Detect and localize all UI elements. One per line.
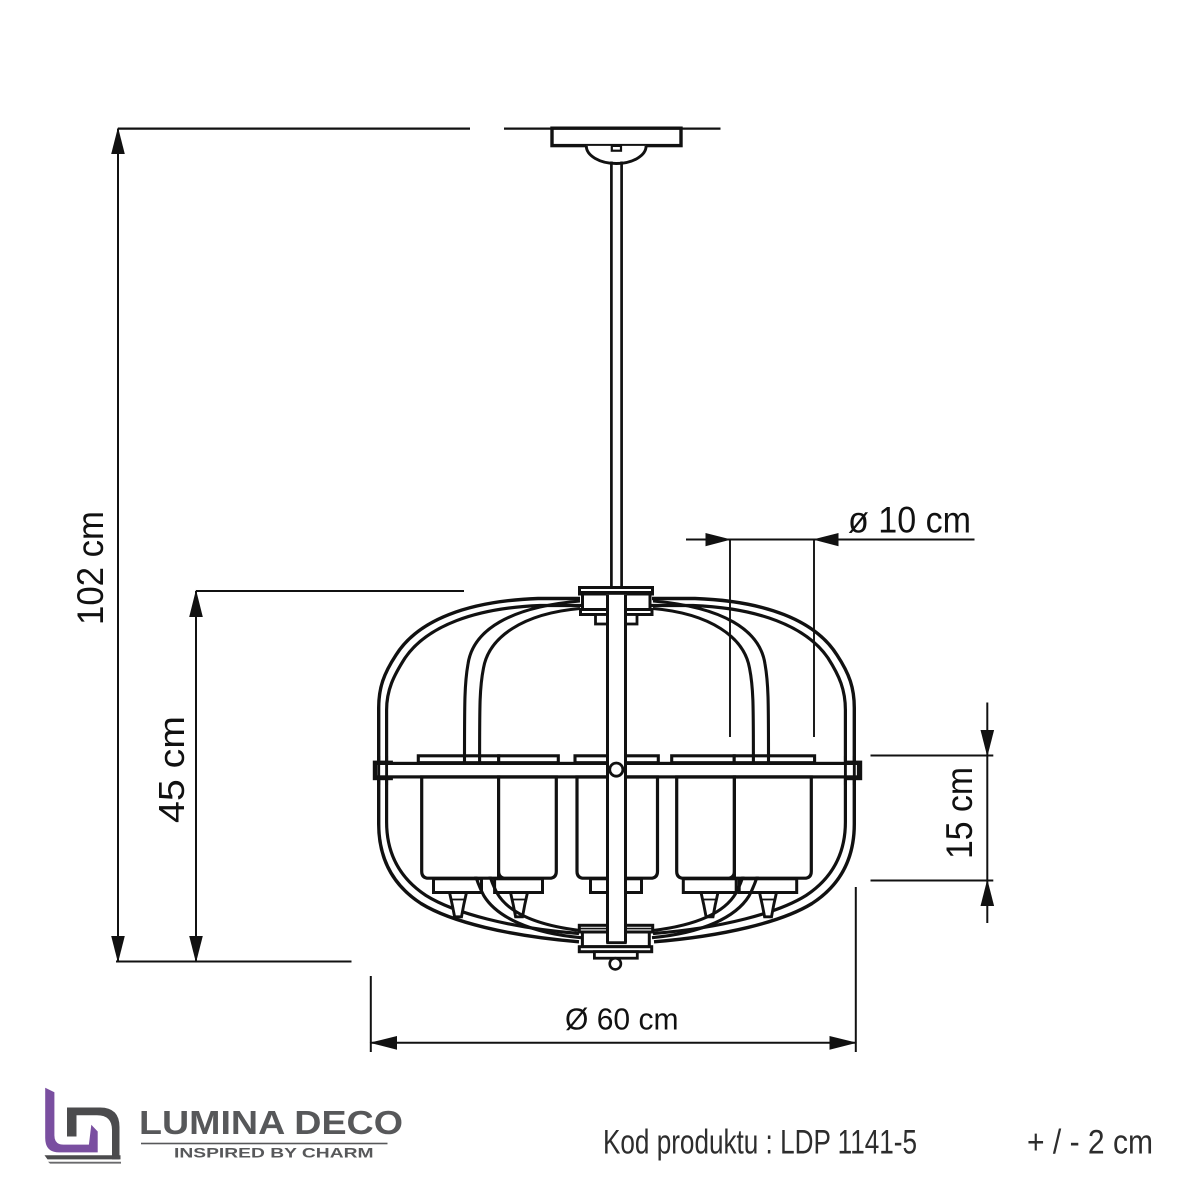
- svg-text:ø 10 cm: ø 10 cm: [848, 499, 971, 541]
- svg-text:Kod produktu : LDP 1141-5: Kod produktu : LDP 1141-5: [603, 1124, 917, 1162]
- svg-text:+ / - 2 cm: + / - 2 cm: [1027, 1124, 1153, 1162]
- svg-text:Ø 60 cm: Ø 60 cm: [565, 1002, 679, 1037]
- svg-text:15 cm: 15 cm: [939, 767, 980, 859]
- svg-text:LUMINA DECO: LUMINA DECO: [139, 1104, 403, 1141]
- svg-text:45 cm: 45 cm: [151, 716, 192, 823]
- svg-text:INSPIRED BY CHARM: INSPIRED BY CHARM: [174, 1145, 374, 1161]
- svg-text:102 cm: 102 cm: [70, 511, 111, 625]
